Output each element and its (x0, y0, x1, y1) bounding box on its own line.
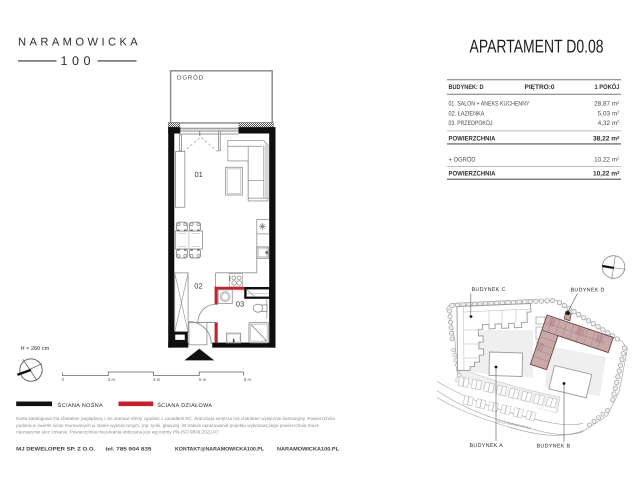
svg-text:BUDYNEK C: BUDYNEK C (472, 287, 506, 293)
svg-text:APARTAMENT D0.08: APARTAMENT D0.08 (470, 35, 604, 56)
svg-text:4 m: 4 m (153, 377, 161, 382)
svg-text:KONTAKT@NARAMOWICKA100.PL: KONTAKT@NARAMOWICKA100.PL (175, 447, 264, 453)
svg-text:8 m: 8 m (244, 377, 252, 382)
svg-text:+ OGRÓD: + OGRÓD (449, 155, 476, 163)
svg-text:nieznacznie ulec zmianie. Powi: nieznacznie ulec zmianie. Powierzchnia m… (16, 430, 220, 435)
svg-text:BUDYNEK B: BUDYNEK B (537, 444, 571, 450)
svg-text:6 m: 6 m (199, 377, 207, 382)
svg-text:Karta katalogowa ma charakter: Karta katalogowa ma charakter poglądowy … (16, 416, 335, 421)
svg-text:OGRÓD: OGRÓD (177, 74, 204, 82)
svg-text:H = 260 cm: H = 260 cm (21, 346, 50, 352)
svg-text:2 m: 2 m (108, 377, 116, 382)
svg-text:10,22 m2: 10,22 m2 (594, 156, 620, 164)
svg-text:NARAMOWICKA100.PL: NARAMOWICKA100.PL (277, 447, 339, 453)
svg-text:100: 100 (61, 54, 96, 68)
svg-text:ŚCIANA NOŚNA: ŚCIANA NOŚNA (58, 402, 103, 409)
svg-text:BUDYNEK A: BUDYNEK A (470, 443, 504, 449)
svg-text:38,22 m2: 38,22 m2 (593, 135, 620, 143)
svg-text:02. ŁAZIENKA: 02. ŁAZIENKA (449, 110, 486, 117)
svg-text:podana w świetle ścian murowan: podana w świetle ścian murowanych w stan… (16, 423, 319, 428)
svg-text:28,87 m2: 28,87 m2 (594, 100, 620, 108)
svg-text:0: 0 (62, 377, 65, 382)
svg-text:PIĘTRO:0: PIĘTRO:0 (525, 84, 555, 91)
svg-text:10,22 m2: 10,22 m2 (593, 170, 620, 178)
svg-text:01: 01 (195, 170, 203, 179)
svg-text:5,03 m2: 5,03 m2 (598, 110, 621, 118)
svg-text:POWIERZCHNIA: POWIERZCHNIA (449, 136, 496, 143)
svg-text:03. PRZEDPOKÓJ: 03. PRZEDPOKÓJ (449, 119, 493, 127)
svg-text:BUDYNEK: D: BUDYNEK: D (449, 84, 484, 91)
svg-text:1 POKÓJ: 1 POKÓJ (595, 83, 620, 91)
svg-text:MJ DEWELOPER SP. Z O.O.: MJ DEWELOPER SP. Z O.O. (16, 447, 96, 453)
svg-text:03: 03 (236, 300, 244, 309)
svg-text:tel. 785 904 835: tel. 785 904 835 (105, 447, 151, 453)
svg-text:POWIERZCHNIA: POWIERZCHNIA (449, 171, 496, 178)
svg-text:BUDYNEK D: BUDYNEK D (571, 288, 605, 294)
svg-text:NARAMOWICKA: NARAMOWICKA (18, 37, 141, 49)
svg-text:4,32 m2: 4,32 m2 (598, 119, 621, 127)
svg-text:02: 02 (194, 282, 202, 291)
svg-text:01. SALON + ANEKS KUCHENNY: 01. SALON + ANEKS KUCHENNY (449, 101, 531, 108)
svg-text:ŚCIANA DZIAŁOWA: ŚCIANA DZIAŁOWA (157, 402, 212, 409)
